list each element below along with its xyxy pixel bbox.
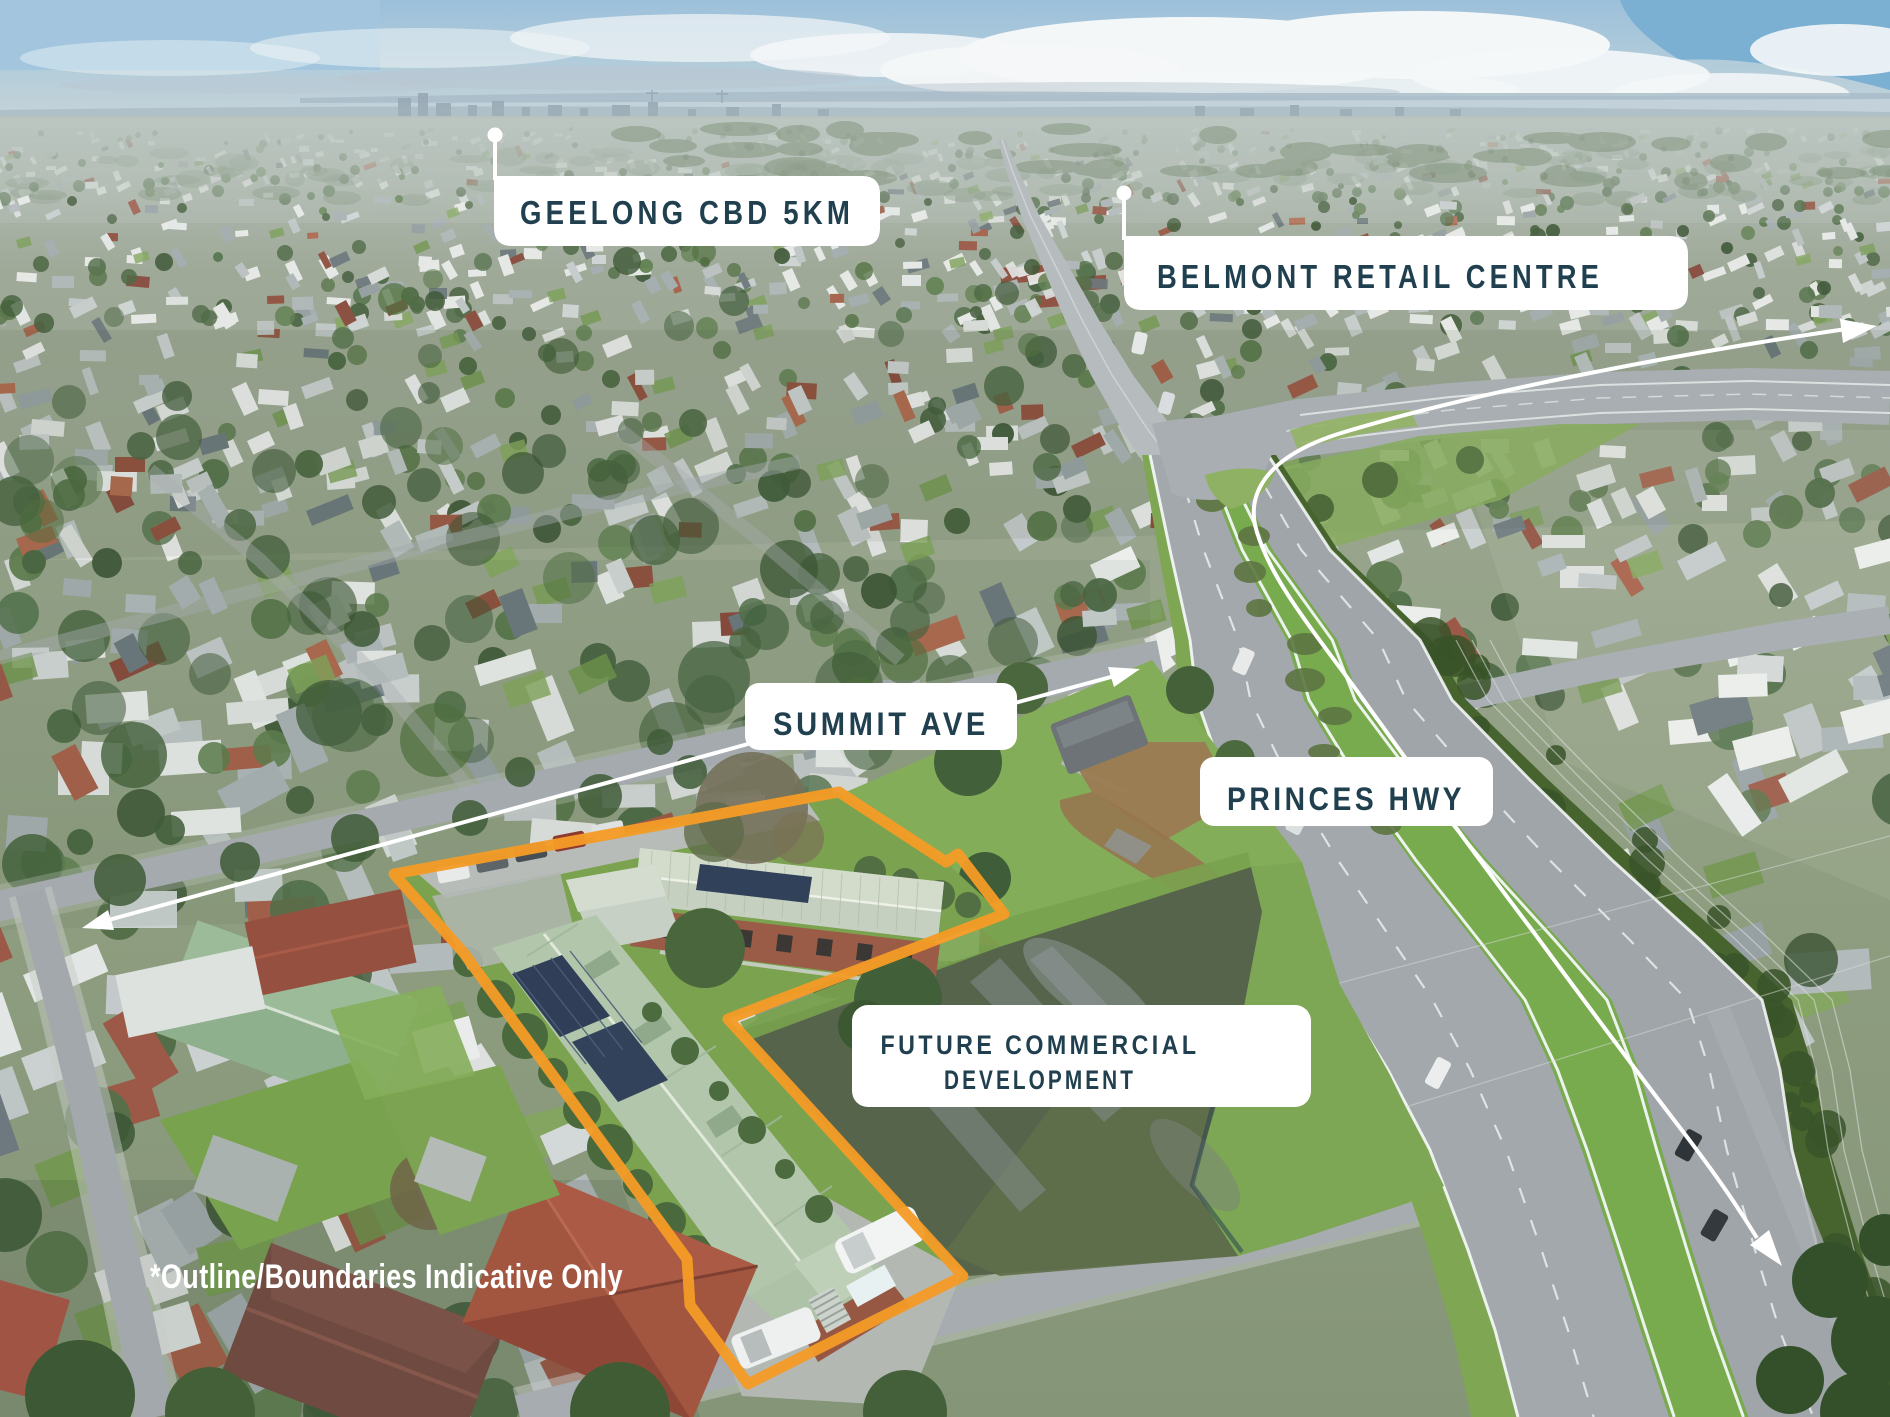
- svg-text:FUTURE COMMERCIAL: FUTURE COMMERCIAL: [881, 1030, 1200, 1060]
- svg-text:BELMONT RETAIL CENTRE: BELMONT RETAIL CENTRE: [1157, 258, 1603, 295]
- svg-text:PRINCES HWY: PRINCES HWY: [1227, 781, 1465, 817]
- svg-text:*Outline/Boundaries Indicative: *Outline/Boundaries Indicative Only: [150, 1258, 623, 1296]
- svg-text:SUMMIT AVE: SUMMIT AVE: [773, 706, 989, 742]
- svg-text:DEVELOPMENT: DEVELOPMENT: [944, 1065, 1136, 1095]
- svg-text:GEELONG CBD 5KM: GEELONG CBD 5KM: [520, 194, 854, 231]
